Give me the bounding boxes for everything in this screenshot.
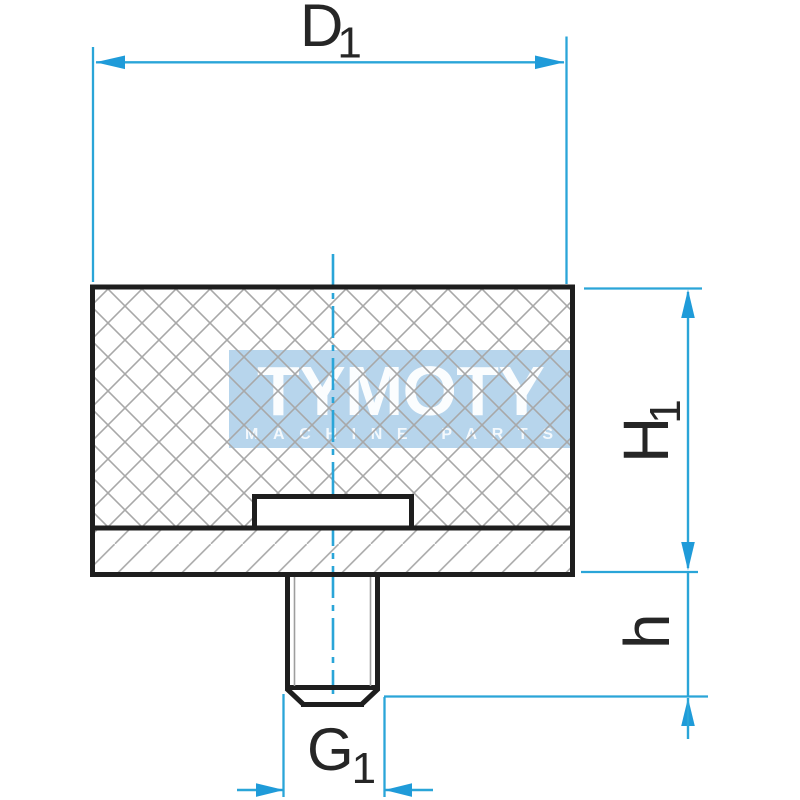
svg-text:h: h: [611, 613, 683, 649]
